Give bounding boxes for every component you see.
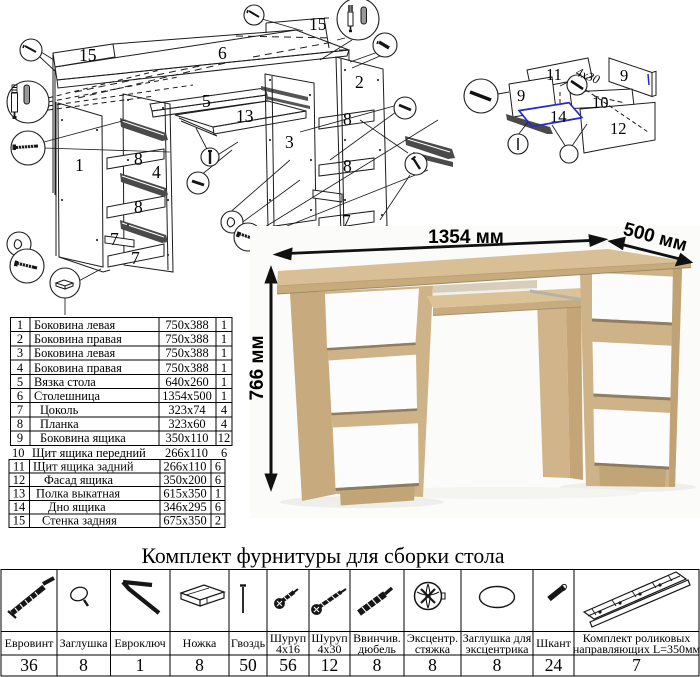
svg-text:1354х500: 1354х500 xyxy=(162,389,212,403)
svg-text:7: 7 xyxy=(131,248,140,268)
svg-text:15: 15 xyxy=(309,14,327,34)
svg-text:8: 8 xyxy=(343,109,352,129)
svg-text:Дно ящика: Дно ящика xyxy=(48,500,106,514)
svg-text:14: 14 xyxy=(13,500,25,514)
svg-text:Планка: Планка xyxy=(40,417,79,431)
svg-text:8: 8 xyxy=(428,655,437,675)
svg-text:Столешница: Столешница xyxy=(34,389,101,403)
svg-text:12: 12 xyxy=(610,119,627,138)
svg-text:1: 1 xyxy=(221,361,227,375)
svg-text:1: 1 xyxy=(215,487,221,501)
svg-text:4: 4 xyxy=(17,361,23,375)
svg-text:4: 4 xyxy=(221,417,227,431)
svg-text:10: 10 xyxy=(592,93,609,112)
svg-text:36: 36 xyxy=(20,655,38,675)
svg-text:стяжка: стяжка xyxy=(415,642,451,656)
svg-text:8: 8 xyxy=(134,197,143,217)
svg-text:12: 12 xyxy=(13,473,25,487)
svg-text:1354 мм: 1354 мм xyxy=(428,227,504,248)
svg-text:56: 56 xyxy=(279,655,297,675)
svg-text:7: 7 xyxy=(17,403,23,417)
svg-text:5: 5 xyxy=(17,375,23,389)
svg-text:346х295: 346х295 xyxy=(163,500,206,514)
svg-text:750х388: 750х388 xyxy=(165,332,208,346)
svg-text:12: 12 xyxy=(218,431,230,445)
svg-text:6: 6 xyxy=(221,446,227,460)
svg-text:4х30: 4х30 xyxy=(318,642,342,656)
svg-text:6: 6 xyxy=(218,43,227,63)
svg-text:1: 1 xyxy=(221,332,227,346)
svg-text:15: 15 xyxy=(13,514,25,528)
svg-text:8: 8 xyxy=(343,156,352,176)
svg-text:Евровинт: Евровинт xyxy=(5,636,55,650)
svg-text:640х260: 640х260 xyxy=(165,375,208,389)
svg-text:4: 4 xyxy=(221,403,227,417)
svg-text:Боковина правая: Боковина правая xyxy=(34,332,122,346)
svg-text:1: 1 xyxy=(221,318,227,332)
svg-text:1: 1 xyxy=(136,655,145,675)
svg-text:8: 8 xyxy=(17,417,23,431)
svg-text:15: 15 xyxy=(79,45,97,65)
svg-text:7: 7 xyxy=(110,229,119,249)
svg-text:Евроключ: Евроключ xyxy=(114,636,165,650)
svg-text:Боковина ящика: Боковина ящика xyxy=(40,431,126,445)
svg-text:2: 2 xyxy=(17,332,23,346)
svg-text:750х388: 750х388 xyxy=(165,361,208,375)
svg-text:8: 8 xyxy=(493,655,502,675)
svg-text:Боковина правая: Боковина правая xyxy=(34,361,122,375)
svg-text:750х388: 750х388 xyxy=(165,346,208,360)
svg-text:Полка выкатная: Полка выкатная xyxy=(36,487,120,501)
svg-text:266х110: 266х110 xyxy=(165,446,208,460)
svg-text:10: 10 xyxy=(12,446,24,460)
svg-text:8: 8 xyxy=(195,655,204,675)
svg-text:3: 3 xyxy=(17,346,23,360)
svg-text:Цоколь: Цоколь xyxy=(40,403,79,417)
svg-text:Комплект фурнитуры для сборки: Комплект фурнитуры для сборки стола xyxy=(141,544,504,568)
svg-text:9: 9 xyxy=(517,86,525,105)
svg-text:7: 7 xyxy=(632,655,641,675)
svg-text:4х16: 4х16 xyxy=(276,642,300,656)
svg-text:615х350: 615х350 xyxy=(163,487,206,501)
svg-text:13: 13 xyxy=(236,106,254,126)
svg-text:8: 8 xyxy=(373,655,382,675)
svg-text:4: 4 xyxy=(152,162,161,182)
svg-text:2: 2 xyxy=(215,514,221,528)
svg-text:8: 8 xyxy=(134,149,143,169)
svg-text:эксцентрика: эксцентрика xyxy=(466,642,530,656)
svg-text:750х388: 750х388 xyxy=(165,318,208,332)
svg-text:50: 50 xyxy=(239,655,257,675)
svg-text:12: 12 xyxy=(321,655,339,675)
svg-text:6: 6 xyxy=(17,389,23,403)
svg-text:2: 2 xyxy=(355,72,364,92)
svg-text:Гвоздь: Гвоздь xyxy=(231,636,266,650)
svg-text:Заглушка: Заглушка xyxy=(60,636,109,650)
svg-text:9: 9 xyxy=(17,431,23,445)
svg-text:Щит ящика задний: Щит ящика задний xyxy=(33,460,134,474)
svg-text:1: 1 xyxy=(17,318,23,332)
svg-text:9: 9 xyxy=(620,66,628,85)
svg-text:3: 3 xyxy=(285,132,294,152)
svg-text:350х110: 350х110 xyxy=(166,431,209,445)
svg-text:5: 5 xyxy=(202,91,211,111)
svg-text:Вязка стола: Вязка стола xyxy=(34,375,96,389)
svg-text:1: 1 xyxy=(221,375,227,389)
svg-text:350х200: 350х200 xyxy=(163,473,206,487)
svg-text:Ножка: Ножка xyxy=(183,636,217,650)
svg-text:11: 11 xyxy=(546,65,562,84)
svg-text:6: 6 xyxy=(215,473,221,487)
svg-text:1: 1 xyxy=(221,389,227,403)
svg-text:675х350: 675х350 xyxy=(163,514,206,528)
svg-text:Боковина левая: Боковина левая xyxy=(34,346,115,360)
svg-text:266х110: 266х110 xyxy=(164,460,207,474)
svg-text:323х60: 323х60 xyxy=(168,417,205,431)
svg-text:14: 14 xyxy=(550,107,567,126)
svg-text:дюбель: дюбель xyxy=(358,642,396,656)
svg-text:11: 11 xyxy=(13,460,25,474)
svg-text:Фасад ящика: Фасад ящика xyxy=(44,473,114,487)
svg-text:1: 1 xyxy=(221,346,227,360)
svg-text:1: 1 xyxy=(75,155,84,175)
svg-text:8: 8 xyxy=(79,655,88,675)
svg-text:6: 6 xyxy=(215,460,221,474)
svg-text:Щит ящика передний: Щит ящика передний xyxy=(32,446,146,460)
svg-text:Боковина левая: Боковина левая xyxy=(34,318,115,332)
svg-text:6: 6 xyxy=(215,500,221,514)
svg-text:24: 24 xyxy=(545,655,563,675)
svg-text:Шкант: Шкант xyxy=(536,636,572,650)
svg-text:323х74: 323х74 xyxy=(168,403,205,417)
svg-text:направляющих L=350мм: направляющих L=350мм xyxy=(573,642,700,656)
svg-text:Стенка задняя: Стенка задняя xyxy=(42,514,117,528)
svg-text:766 мм: 766 мм xyxy=(247,335,268,400)
svg-text:13: 13 xyxy=(13,487,25,501)
